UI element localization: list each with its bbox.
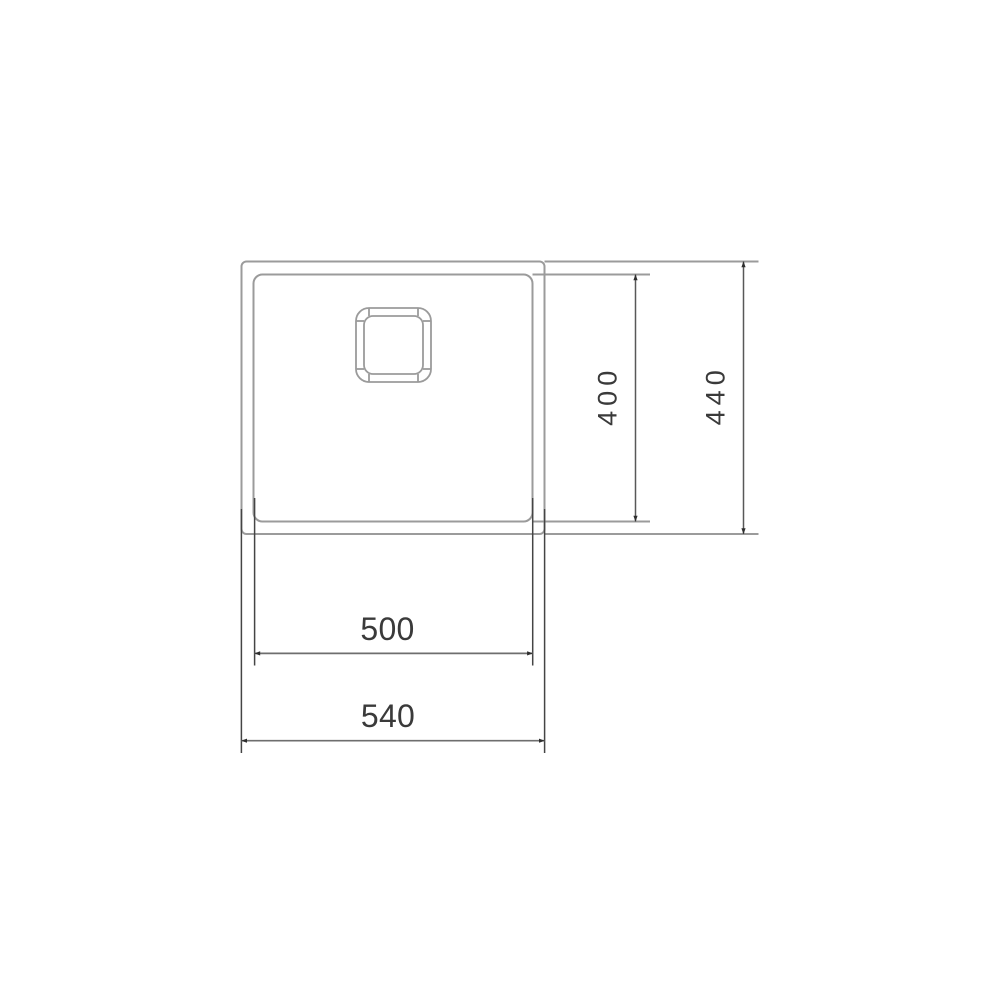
svg-text:500: 500 — [360, 611, 414, 647]
svg-text:440: 440 — [701, 365, 731, 425]
svg-text:540: 540 — [361, 698, 415, 734]
svg-text:400: 400 — [593, 366, 623, 426]
